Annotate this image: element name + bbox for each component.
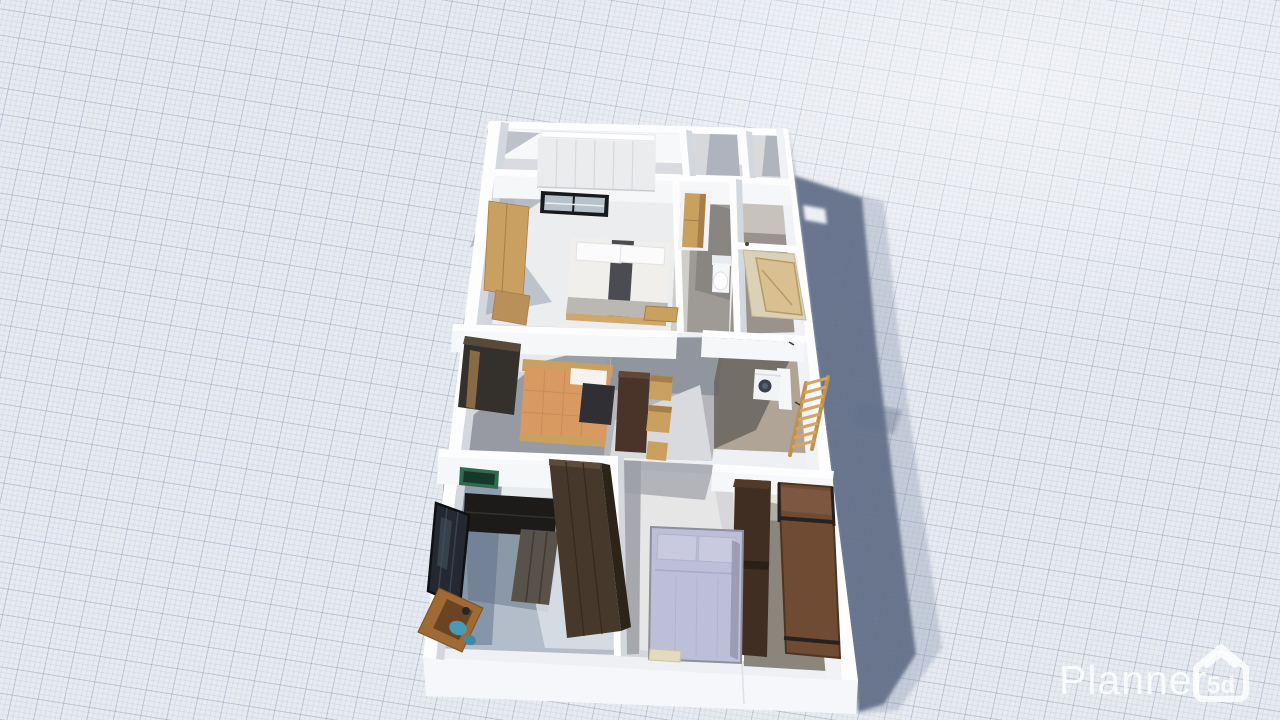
watermark-brand-text: Planner	[1059, 657, 1207, 703]
render-viewport[interactable]: Planner 5d	[0, 0, 1280, 720]
bench-wood	[644, 306, 678, 322]
chair-2	[646, 405, 672, 433]
chair-1	[649, 375, 673, 401]
console-desk	[615, 371, 650, 453]
bench-beige	[649, 649, 681, 662]
toilet	[712, 255, 731, 293]
wall-h1b-face	[735, 183, 793, 206]
interior-window	[540, 191, 609, 217]
bed-brown-rails	[779, 483, 840, 658]
watermark: Planner 5d	[1059, 647, 1246, 703]
watermark-logo-text: 5d	[1207, 672, 1235, 699]
wardrobe-white	[537, 138, 656, 191]
scene-canvas: Planner 5d	[0, 0, 1280, 720]
wardrobe-dark	[458, 336, 521, 415]
washing-machine	[753, 369, 781, 401]
single-bed-orange	[519, 359, 615, 447]
stool	[646, 441, 668, 461]
double-bed-lavender	[649, 527, 743, 663]
tall-cabinet	[678, 190, 711, 251]
